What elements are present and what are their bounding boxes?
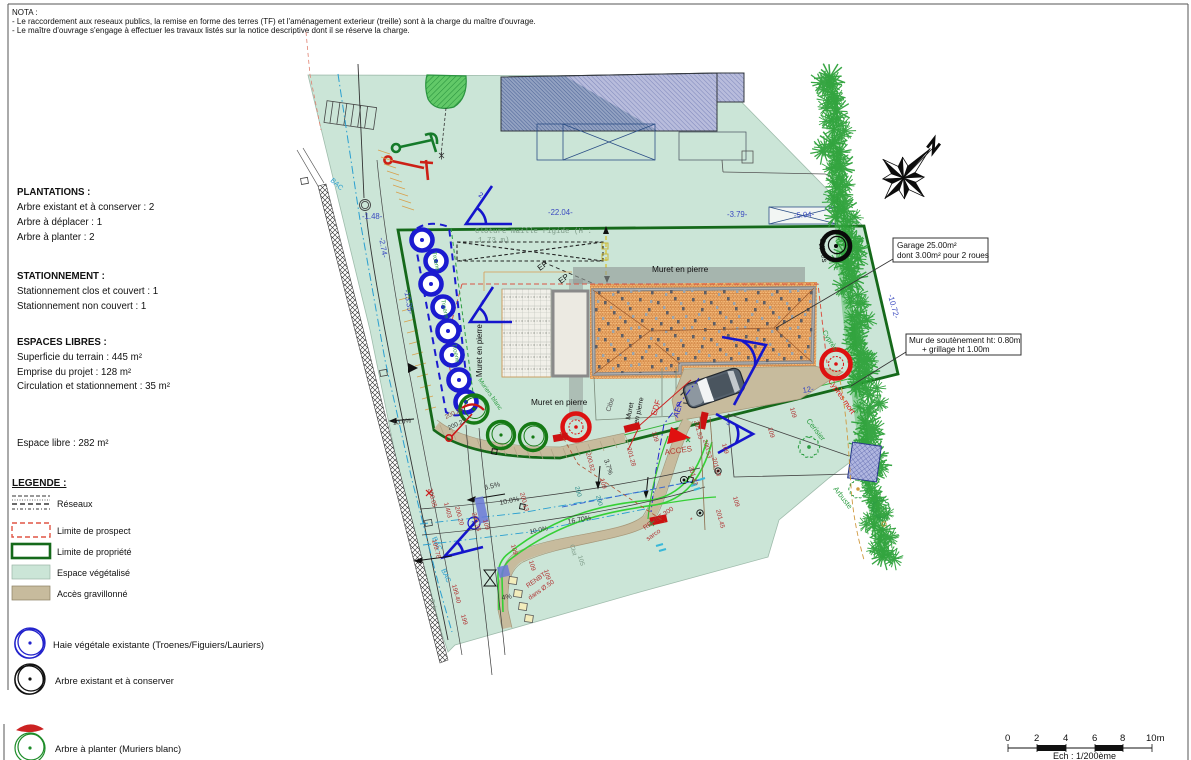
svg-text:Espace libre : 282 m²: Espace libre : 282 m² [17,438,109,449]
svg-text:Arbre à déplacer : 1: Arbre à déplacer : 1 [17,217,102,228]
svg-text:Emprise du projet : 128 m²: Emprise du projet : 128 m² [17,367,132,378]
svg-text:LEGENDE :: LEGENDE : [12,478,66,489]
svg-text:- Le raccordement aux reseaux: - Le raccordement aux reseaux publics, l… [12,17,536,26]
svg-text:Stationnement clos et couvert: Stationnement clos et couvert : 1 [17,286,158,297]
svg-text:ESPACES LIBRES :: ESPACES LIBRES : [17,337,107,348]
svg-text:-22.04-: -22.04- [548,208,573,217]
svg-text:-3.79-: -3.79- [727,210,748,219]
svg-text:Muret en pierre: Muret en pierre [531,397,588,407]
svg-text:Clôture maille rigide (H :: Clôture maille rigide (H : [475,228,592,236]
svg-text:Arbre à planter : 2: Arbre à planter : 2 [17,232,95,243]
svg-text:PLANTATIONS :: PLANTATIONS : [17,187,90,198]
svg-text:2: 2 [1034,733,1039,744]
svg-text:10m: 10m [1146,733,1165,744]
svg-text:Mur de soutènement ht: 0.80m: Mur de soutènement ht: 0.80m [909,336,1021,345]
svg-text:dont 3.00m² pour 2 roues: dont 3.00m² pour 2 roues [897,251,989,260]
svg-text:Haie végétale existante (Troen: Haie végétale existante (Troenes/Figuier… [53,640,264,650]
svg-text:- Le maître d'ouvrage s'engage: - Le maître d'ouvrage s'engage à effectu… [12,26,410,35]
svg-text:Circulation et stationnement :: Circulation et stationnement : 35 m² [17,381,171,392]
svg-text:Garage 25.00m²: Garage 25.00m² [897,241,957,250]
svg-text:Limite de prospect: Limite de prospect [57,526,131,536]
svg-text:1.73 m): 1.73 m) [478,237,510,245]
svg-text:Arbre existant et à conserver: Arbre existant et à conserver [55,676,174,686]
svg-text:+ grillage ht 1.00m: + grillage ht 1.00m [922,345,990,354]
svg-text:STATIONNEMENT :: STATIONNEMENT : [17,271,105,282]
svg-text:4: 4 [1063,733,1068,744]
svg-text:8: 8 [1120,733,1125,744]
svg-text:Muret en pierre: Muret en pierre [652,264,709,274]
svg-text:NOTA :: NOTA : [12,8,38,17]
svg-text:Superficie du terrain : 445 m²: Superficie du terrain : 445 m² [17,352,143,363]
svg-text:Accès gravillonné: Accès gravillonné [57,589,128,599]
svg-text:Ech : 1/200ème: Ech : 1/200ème [1053,751,1116,760]
svg-text:-1.48-: -1.48- [362,212,383,221]
svg-text:6: 6 [1092,733,1097,744]
svg-text:-5.04-: -5.04- [794,210,815,220]
svg-text:Muret en pierre: Muret en pierre [475,324,484,377]
svg-text:Arbre existant et à conserver: Arbre existant et à conserver : 2 [17,202,154,213]
svg-text:Limite de propriété: Limite de propriété [57,547,132,557]
svg-text:Réseaux: Réseaux [57,499,93,509]
svg-text:Espace végétalisé: Espace végétalisé [57,568,130,578]
svg-text:Arbre à planter (Muriers blanc: Arbre à planter (Muriers blanc) [55,744,181,754]
svg-text:Stationnement non couvert : 1: Stationnement non couvert : 1 [17,301,146,312]
svg-text:0: 0 [1005,733,1010,744]
